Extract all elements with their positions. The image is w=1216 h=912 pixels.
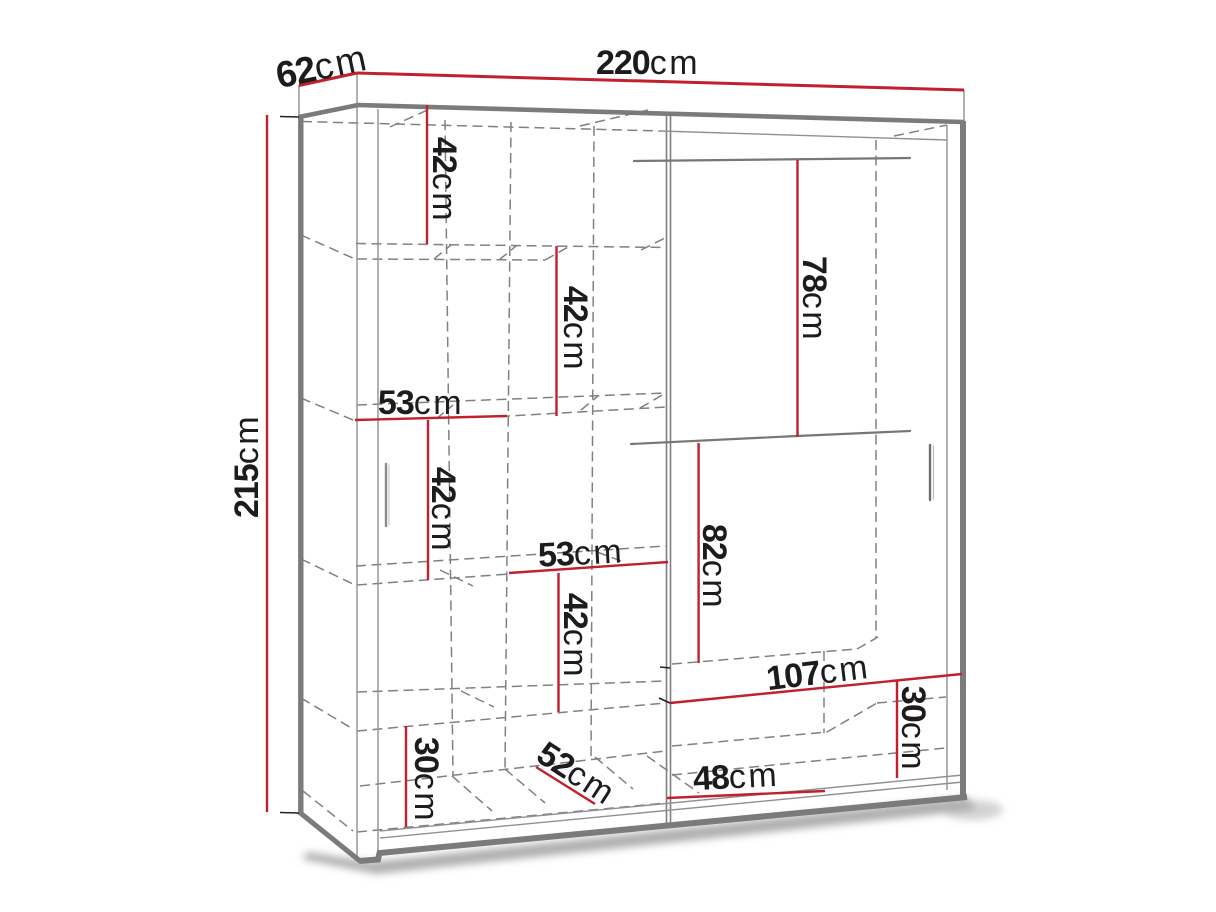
svg-text:30cm: 30cm	[407, 737, 445, 823]
svg-text:42cm: 42cm	[556, 286, 594, 372]
svg-text:42cm: 42cm	[424, 467, 462, 553]
svg-text:53cm: 53cm	[378, 384, 464, 422]
svg-text:53cm: 53cm	[537, 532, 625, 574]
svg-text:215cm: 215cm	[228, 414, 266, 518]
svg-text:42cm: 42cm	[425, 137, 463, 223]
svg-text:42cm: 42cm	[556, 593, 594, 679]
svg-text:78cm: 78cm	[795, 256, 833, 342]
svg-text:220cm: 220cm	[596, 44, 700, 82]
svg-text:48cm: 48cm	[692, 756, 780, 798]
svg-text:82cm: 82cm	[695, 524, 733, 610]
svg-text:30cm: 30cm	[894, 686, 932, 772]
